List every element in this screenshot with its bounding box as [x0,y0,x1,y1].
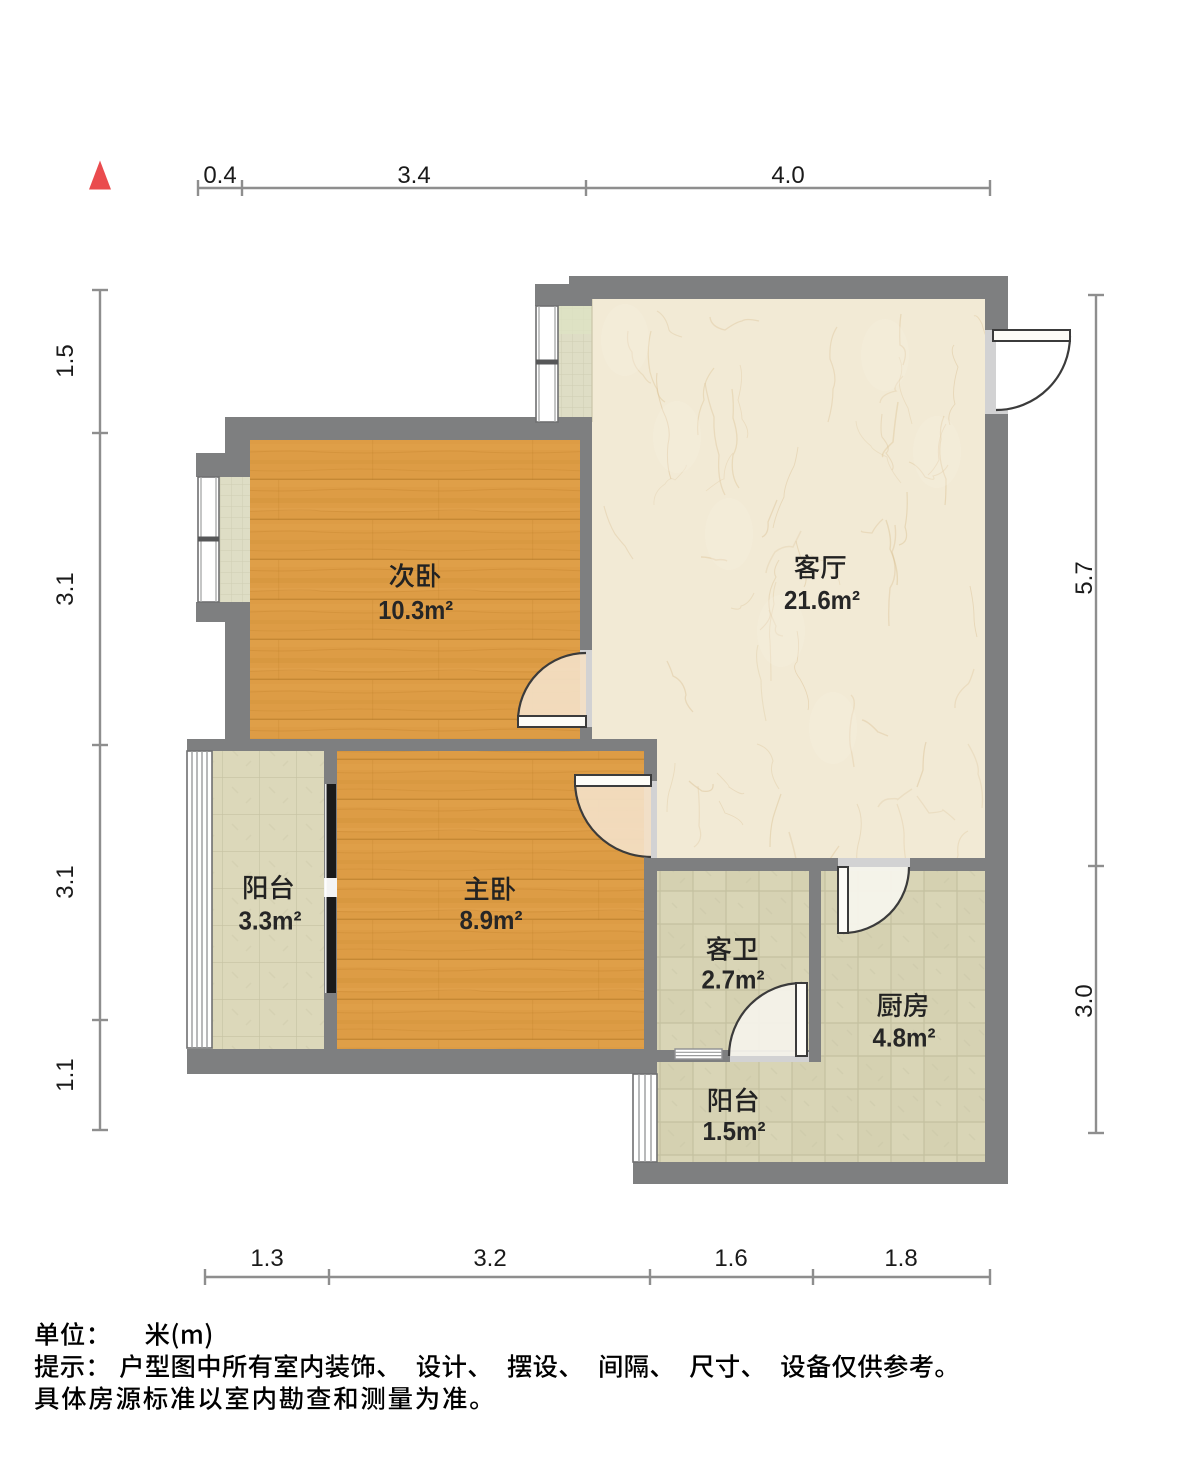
svg-text:3.4: 3.4 [397,162,430,189]
svg-text:3.1: 3.1 [52,572,79,605]
svg-text:10.3m²: 10.3m² [378,595,453,625]
svg-text:1.6: 1.6 [714,1245,747,1272]
svg-text:0.4: 0.4 [203,162,236,189]
svg-text:3.1: 3.1 [52,865,79,898]
svg-text:4.8m²: 4.8m² [873,1023,936,1053]
svg-text:1.1: 1.1 [52,1058,79,1091]
svg-text:5.7: 5.7 [1071,561,1098,594]
svg-text:1.8: 1.8 [884,1245,917,1272]
svg-text:3.0: 3.0 [1071,984,1098,1017]
svg-text:4.0: 4.0 [771,162,804,189]
svg-text:1.5m²: 1.5m² [703,1116,766,1146]
svg-text:1.3: 1.3 [250,1245,283,1272]
svg-text:1.5: 1.5 [52,344,79,377]
svg-text:21.6m²: 21.6m² [784,585,860,615]
svg-text:3.2: 3.2 [473,1245,506,1272]
svg-text:3.3m²: 3.3m² [239,906,302,936]
svg-text:2.7m²: 2.7m² [702,965,765,995]
svg-text:8.9m²: 8.9m² [460,905,523,935]
